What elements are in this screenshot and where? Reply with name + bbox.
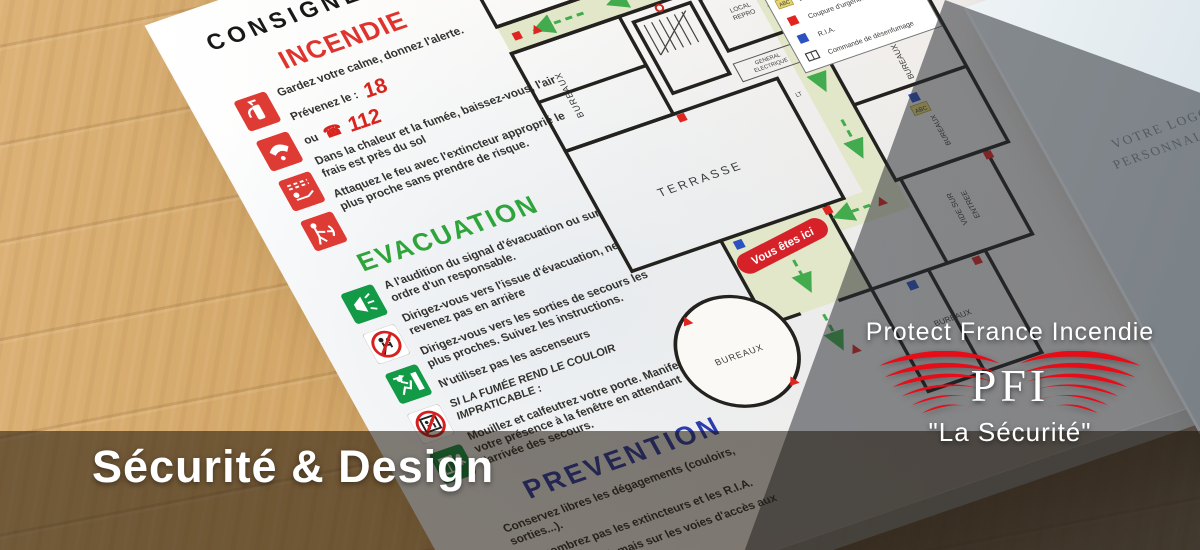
room-label-terrasse: TERRASSE: [655, 158, 746, 199]
crawl-under-smoke-icon: [277, 171, 326, 212]
emergency-exit-icon: [384, 364, 433, 405]
pfi-wings-logo: PFI: [850, 349, 1170, 421]
room-label-lt: LT: [795, 91, 804, 99]
emergency-number-112: 112: [343, 106, 385, 136]
room-label-bureaux: BUREAUX: [889, 43, 917, 81]
phone-icon: [255, 131, 304, 172]
brand-logo-block: Protect France Incendie PFI: [850, 318, 1170, 448]
telephone-icon: ☎: [321, 122, 346, 141]
brand-acronym: PFI: [971, 359, 1049, 412]
no-panic-icon: [362, 324, 411, 365]
alarm-megaphone-icon: [340, 284, 389, 325]
brand-name: Protect France Incendie: [850, 318, 1170, 347]
or-label: ou: [301, 131, 320, 146]
extinguisher-icon: [233, 91, 282, 132]
fight-fire-icon: [299, 211, 348, 252]
emergency-number-18: 18: [359, 75, 391, 101]
brand-slogan: "La Sécurité": [850, 417, 1170, 448]
marketing-banner: CONSIGNES DE SECURITE INCENDIE Gardez vo…: [0, 0, 1200, 550]
tagline: Sécurité & Design: [92, 441, 494, 493]
